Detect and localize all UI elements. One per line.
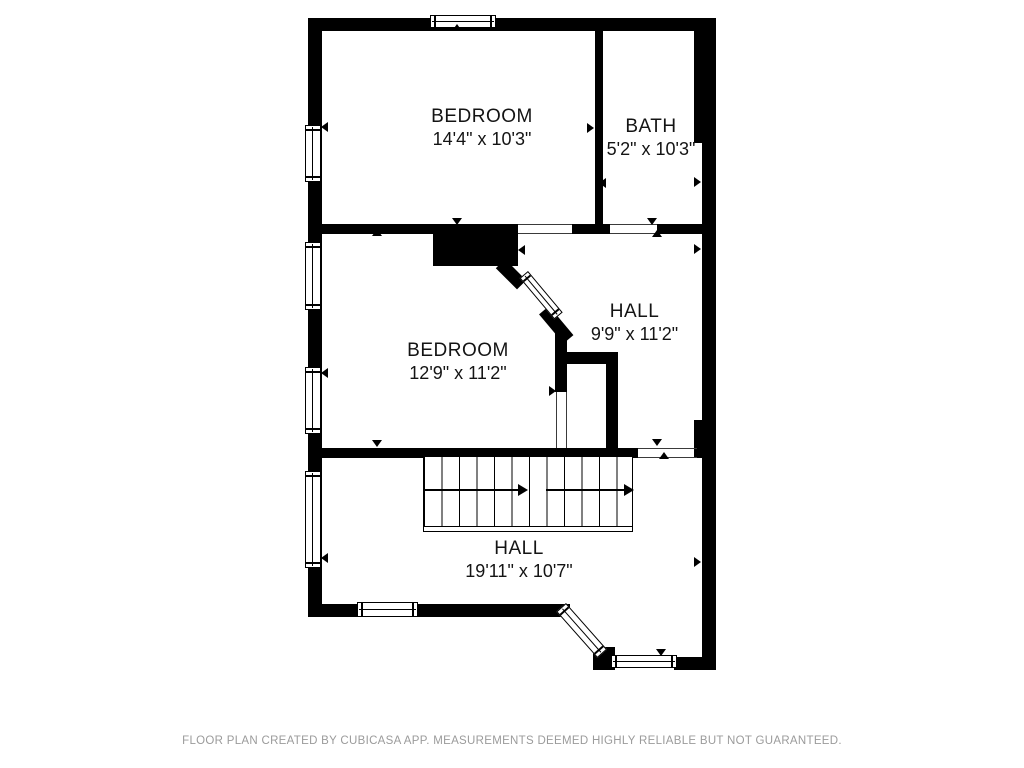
- room-name: BEDROOM: [352, 339, 564, 362]
- room-label-bath: BATH 5'2" x 10'3": [597, 115, 705, 161]
- window-symbol-left-1: [305, 125, 321, 182]
- door-opening-bedroom-top: [518, 233, 572, 234]
- room-label-bedroom-middle: BEDROOM 12'9" x 11'2": [352, 339, 564, 385]
- direction-marker: [694, 557, 701, 567]
- room-dimensions: 14'4" x 10'3": [377, 128, 587, 151]
- room-dimensions: 12'9" x 11'2": [352, 362, 564, 385]
- direction-marker: [652, 439, 662, 446]
- direction-marker: [549, 386, 556, 396]
- stairs-landing-edge: [423, 526, 633, 532]
- room-label-hall-middle: HALL 9'9" x 11'2": [562, 300, 707, 346]
- stairs-direction-arrow: [518, 484, 528, 496]
- window-symbol-left-2: [305, 242, 321, 310]
- room-name: BATH: [597, 115, 705, 138]
- room-dimensions: 9'9" x 11'2": [562, 323, 707, 346]
- direction-marker: [452, 24, 462, 31]
- direction-marker: [452, 218, 462, 225]
- door-opening-closet: [556, 392, 557, 448]
- stairs-direction-line: [546, 489, 624, 491]
- wall-mid-horizontal-c: [657, 224, 702, 234]
- direction-marker: [321, 122, 328, 132]
- room-name: BEDROOM: [377, 105, 587, 128]
- direction-marker: [321, 553, 328, 563]
- floor-plan-page: BEDROOM 14'4" x 10'3" BATH 5'2" x 10'3" …: [0, 0, 1024, 768]
- direction-marker: [372, 229, 382, 236]
- wall-mid-horizontal-b: [572, 224, 610, 234]
- direction-marker: [599, 178, 606, 188]
- window-symbol-bay-diagonal: [556, 603, 607, 658]
- direction-marker: [647, 23, 657, 30]
- direction-marker: [372, 440, 382, 447]
- passage-opening-halls: [638, 448, 697, 449]
- direction-marker: [694, 244, 701, 254]
- direction-marker: [656, 649, 666, 656]
- wall-bottom-left: [308, 604, 570, 617]
- room-dimensions: 5'2" x 10'3": [597, 138, 705, 161]
- disclaimer-text: FLOOR PLAN CREATED BY CUBICASA APP. MEAS…: [0, 735, 1024, 747]
- window-symbol-top: [430, 15, 496, 28]
- wall-bottom-right: [674, 657, 716, 670]
- door-opening-closet: [566, 392, 567, 448]
- window-symbol-left-3: [305, 367, 321, 434]
- door-opening-bath: [610, 233, 657, 234]
- direction-marker: [647, 218, 657, 225]
- stairs-direction-arrow: [624, 484, 634, 496]
- room-label-bedroom-top: BEDROOM 14'4" x 10'3": [377, 105, 587, 151]
- direction-marker: [659, 452, 669, 459]
- door-opening-bedroom-top: [518, 224, 572, 225]
- staircase: [423, 457, 633, 526]
- direction-marker: [587, 123, 594, 133]
- window-symbol-bottom-right: [611, 655, 677, 668]
- direction-marker: [652, 230, 662, 237]
- room-name: HALL: [562, 300, 707, 323]
- wall-right-stub: [694, 420, 702, 458]
- window-symbol-bottom: [357, 602, 418, 617]
- room-dimensions: 19'11" x 10'7": [413, 560, 625, 583]
- window-symbol-left-4: [305, 471, 321, 568]
- room-label-hall-lower: HALL 19'11" x 10'7": [413, 537, 625, 583]
- direction-marker: [694, 177, 701, 187]
- stairs-direction-line: [424, 489, 518, 491]
- wall-closet-right: [606, 352, 618, 458]
- room-name: HALL: [413, 537, 625, 560]
- direction-marker: [321, 368, 328, 378]
- direction-marker: [518, 245, 525, 255]
